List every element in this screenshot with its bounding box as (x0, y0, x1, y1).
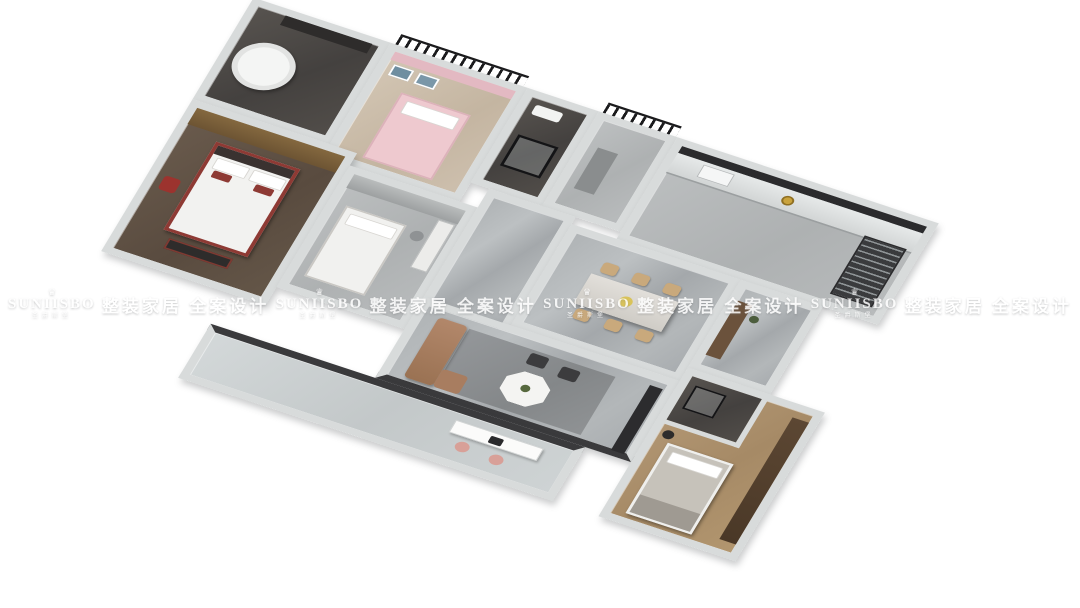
watermark-slogan: 整装家居 全案设计 (905, 292, 1072, 317)
dining-table (573, 273, 679, 332)
dining-chair (633, 328, 655, 343)
plant (747, 315, 760, 325)
pink-chair (486, 453, 505, 467)
dining-chair (571, 308, 593, 323)
toilet (531, 105, 564, 123)
laptop (487, 436, 504, 447)
vanity (280, 15, 372, 53)
pink-chair (452, 440, 471, 454)
master-bed (163, 142, 300, 258)
shower-enclosure (682, 385, 727, 418)
kids-bed (362, 92, 470, 180)
bathtub (221, 35, 305, 98)
floor-plan (41, 0, 939, 561)
desk-chair (407, 229, 425, 243)
dining-chair (599, 262, 621, 277)
kitchen-window (678, 146, 927, 233)
floorplan-render: ♛ SUNIISBO 圣爵斯堡 整装家居 全案设计 ♛ SUNIISBO 圣爵斯… (0, 0, 1080, 608)
dining-chair (602, 318, 624, 333)
guest-bed (626, 443, 734, 535)
shower-enclosure (500, 134, 559, 178)
accent-chair (157, 175, 182, 194)
entry-cabinet (574, 148, 619, 195)
dining-chair (661, 282, 683, 297)
appliance-cabinet (830, 235, 907, 307)
wall-art (413, 73, 440, 90)
wall-art (388, 64, 415, 81)
floor-lamp (660, 429, 676, 441)
study-bed (304, 206, 407, 296)
dining-chair (630, 272, 652, 287)
